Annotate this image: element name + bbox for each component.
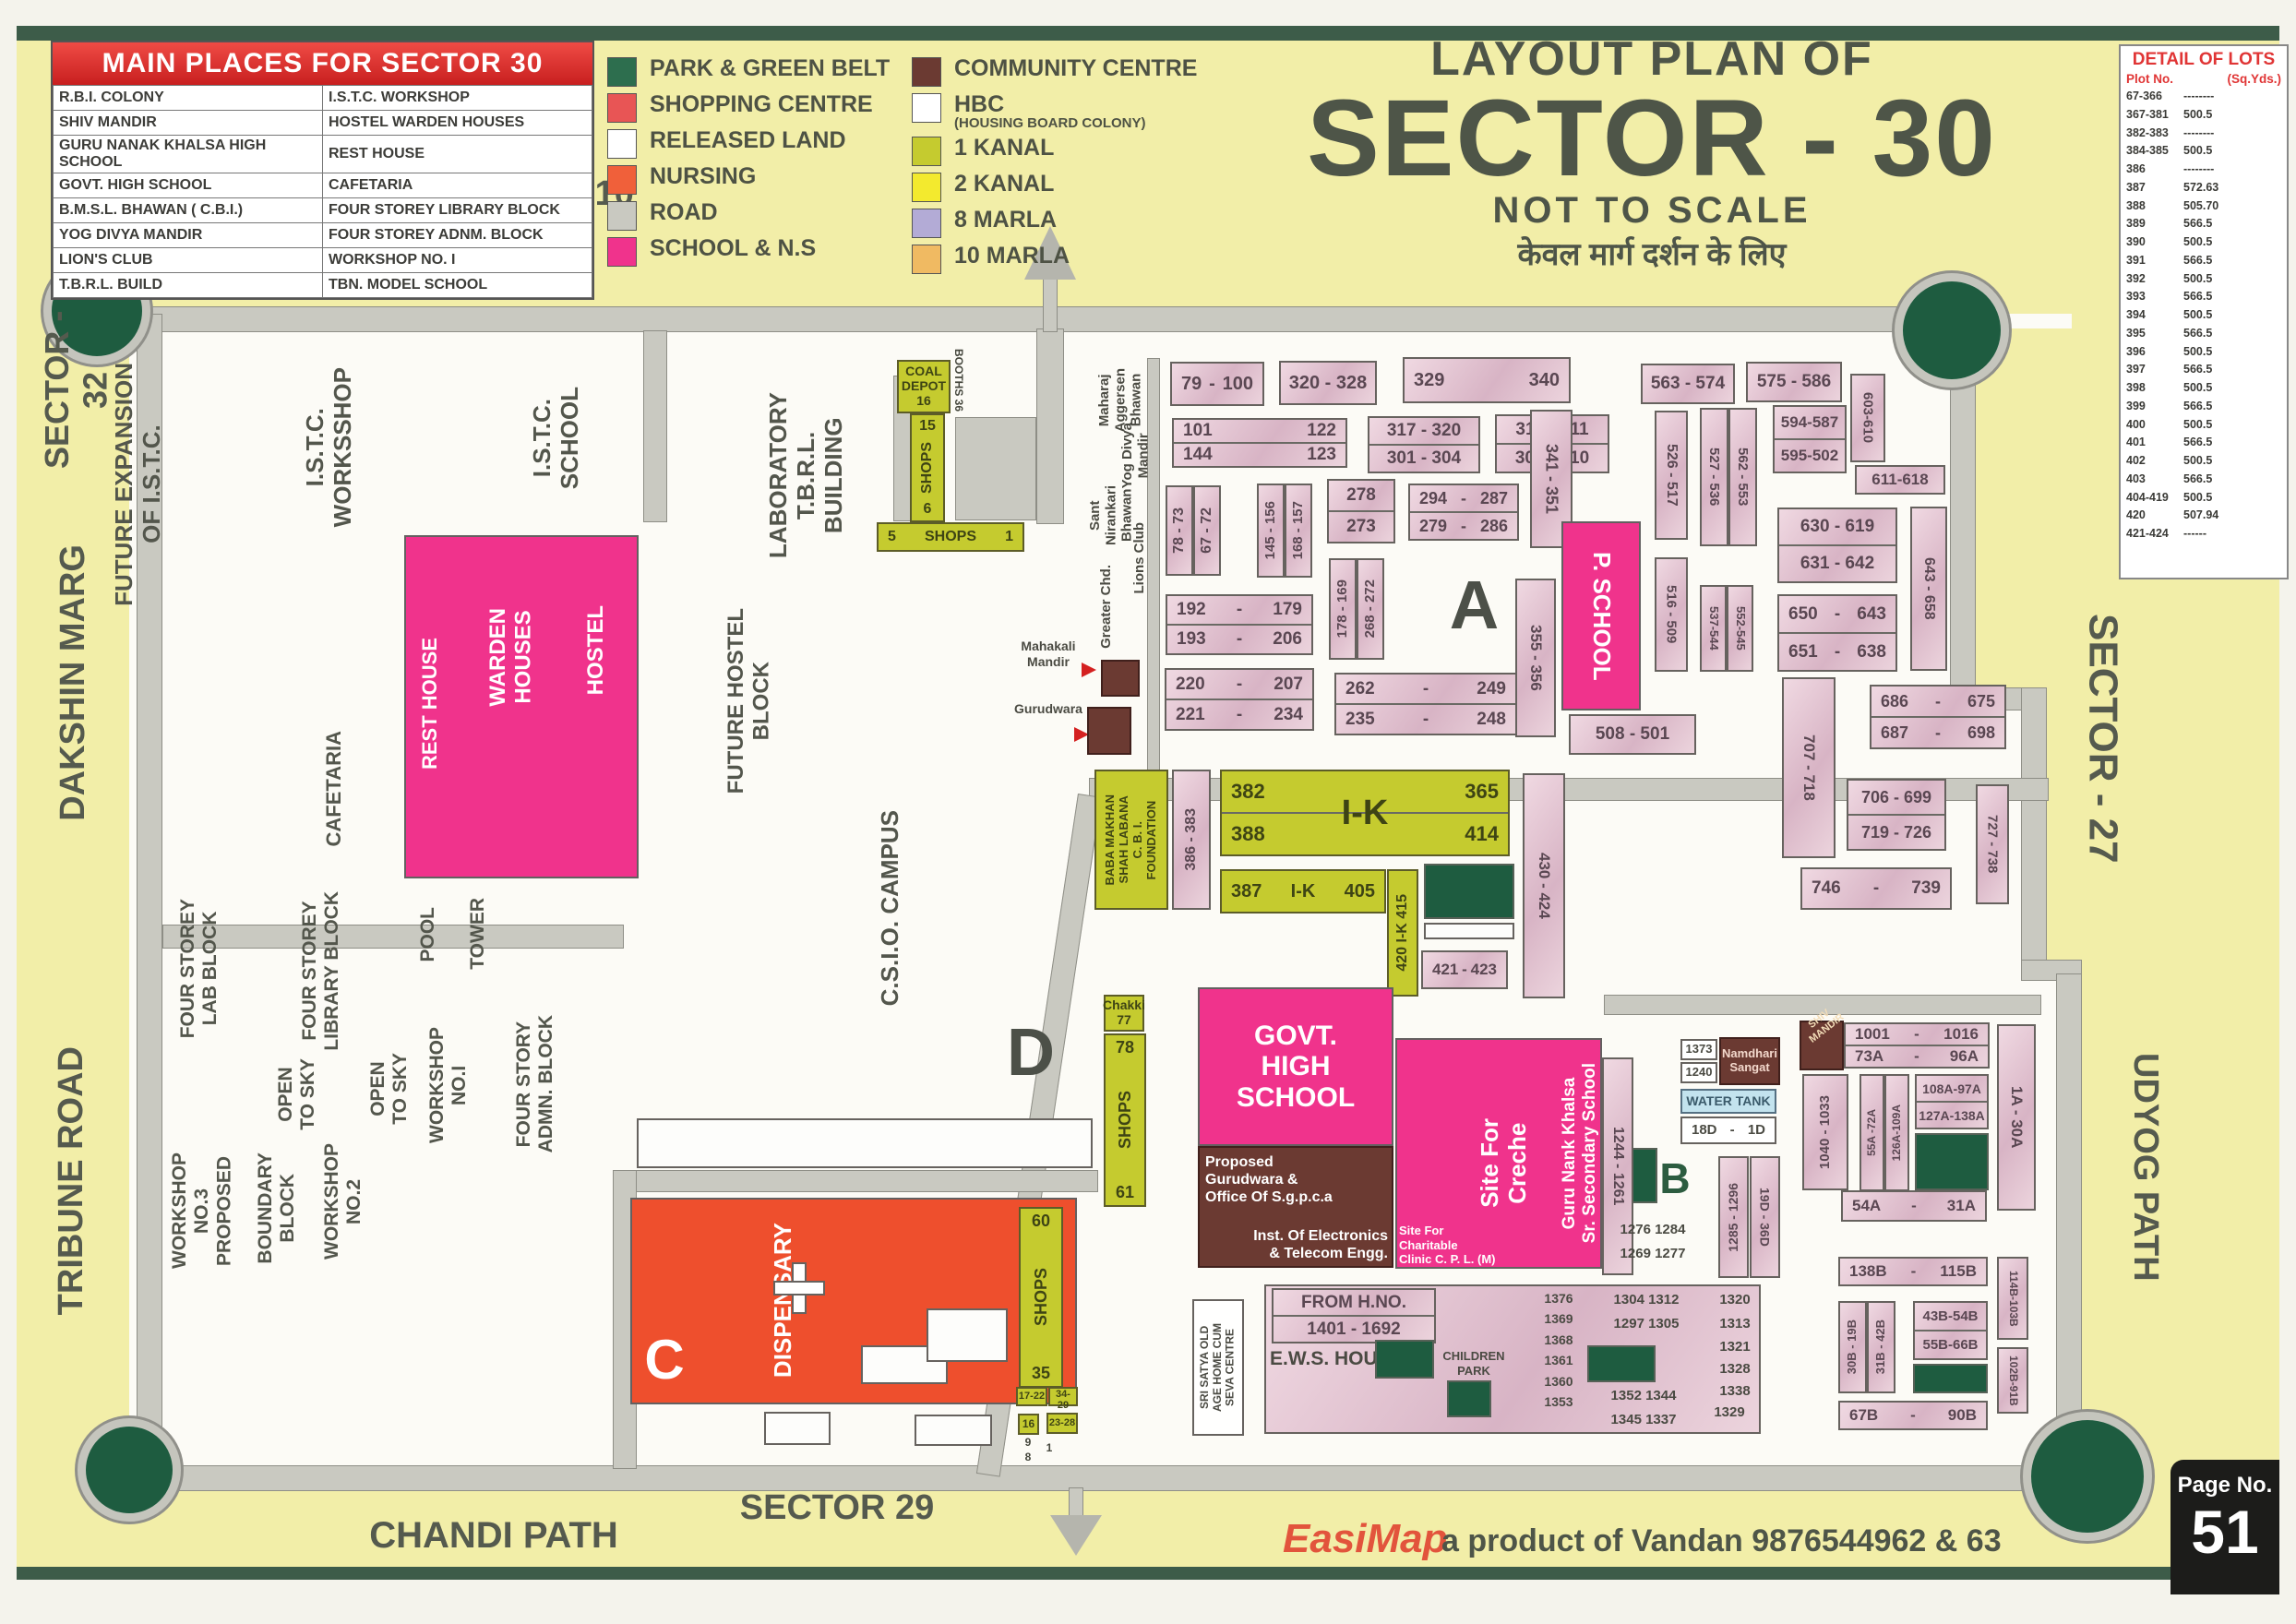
lots-row: 388505.70: [2126, 197, 2281, 216]
plot-row: 108A-97A: [1917, 1076, 1987, 1101]
plot-30b-19b: 30B - 19B: [1838, 1301, 1867, 1393]
plot-number: -: [1461, 489, 1466, 508]
plot-55a-72a-wrap: 55A -72A: [1861, 1076, 1883, 1189]
lots-row: 395566.5: [2126, 325, 2281, 343]
plot-row: WATER TANK: [1682, 1091, 1775, 1112]
plot-643-658-text: 643 - 658: [1920, 557, 1937, 620]
plot-1285-1296-text: 1285 - 1296: [1726, 1183, 1740, 1252]
main-places-row: LION'S CLUBWORKSHOP NO. I: [54, 248, 592, 273]
plot-row: 686-675: [1871, 687, 2004, 716]
lots-row: 386--------: [2126, 161, 2281, 179]
plot-number: 206: [1273, 629, 1302, 650]
plot-603-610-wrap: 603-610: [1852, 376, 1883, 460]
bottom-border-bar: [17, 1567, 2279, 1580]
shops-strip-top-part2: 6: [924, 498, 932, 520]
plot-706-719: 706 - 699719 - 726: [1847, 779, 1946, 851]
plot-268-272: 268 - 272: [1357, 558, 1384, 660]
plot-1a-30a: 1A - 30A: [1997, 1024, 2036, 1211]
plot-row: Namdhari Sangat: [1721, 1039, 1778, 1083]
label-pool-wrap: POOL: [413, 900, 443, 969]
plot-number: 115B: [1940, 1262, 1977, 1280]
plot-number: SHOPS: [925, 529, 976, 545]
main-places-row: R.B.I. COLONYI.S.T.C. WORKSHOP: [54, 86, 592, 111]
plot-168-157: 168 - 157: [1285, 484, 1312, 578]
main-places-cell: FOUR STOREY LIBRARY BLOCK: [323, 198, 592, 223]
zone-baba-makhan: BABA MAKHAN SHAH LABANA C. B. I. FOUNDAT…: [1094, 770, 1168, 910]
plot-727-738-wrap: 727 - 738: [1978, 786, 2007, 902]
label-future-hostel-wrap: FUTURE HOSTEL BLOCK: [718, 586, 781, 817]
plot-row: 575 - 586: [1748, 364, 1840, 400]
plot-number: -: [1835, 604, 1840, 625]
lots-row: 394500.5: [2126, 306, 2281, 325]
lots-sqyds: 500.5: [2183, 379, 2212, 398]
label-open-sky-2: OPEN TO SKY: [365, 1045, 413, 1132]
page-number-label: Page No.: [2170, 1473, 2279, 1499]
plot-number: 287: [1480, 489, 1508, 508]
plot-number: 651: [1788, 642, 1818, 663]
legend-swatch: [912, 57, 941, 87]
plot-number: 122: [1307, 421, 1336, 441]
legend-label: SHOPPING CENTRE: [650, 93, 873, 116]
legend-label: 10 MARLA: [954, 245, 1070, 268]
page-title: SECTOR - 30: [1292, 87, 2012, 190]
main-places-cell: R.B.I. COLONY: [54, 86, 323, 111]
lots-plot-no: 402: [2126, 452, 2183, 471]
lots-plot-no: 389: [2126, 215, 2183, 233]
legend-label: PARK & GREEN BELT: [650, 57, 890, 80]
park-mid: [1424, 864, 1514, 919]
park-children: [1447, 1380, 1491, 1417]
plot-row: 706 - 699: [1848, 781, 1944, 814]
plot-168-157-wrap: 168 - 157: [1286, 485, 1310, 576]
plot-268-272-text: 268 - 272: [1362, 579, 1378, 638]
plot-30b-19b-text: 30B - 19B: [1846, 1319, 1860, 1374]
main-places-cell: B.M.S.L. BHAWAN ( C.B.I.): [54, 198, 323, 223]
plot-650-651: 650-643651-638: [1777, 594, 1897, 672]
plot-43b-55b: 43B-54B55B-66B: [1913, 1301, 1988, 1360]
legend-item: COMMUNITY CENTRE: [912, 57, 1197, 87]
lots-plot-no: 382-383: [2126, 125, 2183, 143]
label-tribune-road-wrap: TRIBUNE ROAD: [50, 1001, 94, 1361]
label-udyog-path-text: UDYOG PATH: [2124, 1053, 2165, 1282]
plot-number: 100: [1223, 374, 1253, 394]
lots-sqyds: 566.5: [2183, 361, 2212, 379]
plot-552-545: 552-545: [1727, 585, 1753, 672]
plot-126a-109a-wrap: 126A-109A: [1886, 1076, 1907, 1189]
plot-number: 638: [1857, 642, 1886, 663]
plot-number: 220: [1176, 675, 1205, 695]
legend-item: 8 MARLA: [912, 209, 1197, 238]
label-hostel-text: HOSTEL: [583, 605, 609, 695]
arrow-down-stem: [1069, 1487, 1083, 1519]
label-mahakali-mandir: Mahakali Mandir: [1010, 639, 1087, 675]
plot-number: 101: [1183, 421, 1213, 441]
shops-strip-a-part2: 61: [1116, 1180, 1134, 1205]
label-tribune-road: TRIBUNE ROAD: [50, 1001, 94, 1361]
lots-row: 67-366--------: [2126, 88, 2281, 106]
plot-341-351-text: 341 - 351: [1542, 444, 1561, 514]
shops-label: SHOPS: [1116, 1091, 1135, 1149]
lots-sqyds: 500.5: [2183, 106, 2212, 125]
main-places-cell: FOUR STOREY ADNM. BLOCK: [323, 223, 592, 248]
main-places-cell: CAFETARIA: [323, 173, 592, 198]
plot-516-509-wrap: 516 - 509: [1656, 559, 1686, 670]
lots-plot-no: 398: [2126, 379, 2183, 398]
park-1304: [1587, 1345, 1656, 1382]
lots-sqyds: 500.5: [2183, 233, 2212, 252]
plot-102b-91b-text: 102B-91B: [2006, 1355, 2019, 1406]
plot-114b-103b: 114B-103B: [1997, 1257, 2028, 1340]
label-laboratory-tbrl-text: LABORATORY T.B.R.L. BUILDING: [765, 392, 848, 558]
lots-plot-no: 404-419: [2126, 489, 2183, 507]
plot-row: 611-618: [1857, 467, 1943, 493]
legend-label: COMMUNITY CENTRE: [954, 57, 1197, 80]
label-lions-club: Lions Club: [1130, 513, 1150, 603]
plot-number: 340: [1529, 370, 1560, 390]
road-arrow-spur: [1036, 328, 1064, 524]
label-chandi-path: CHANDI PATH: [341, 1513, 646, 1558]
legend-label: SCHOOL & N.S: [650, 237, 816, 260]
plot-row: 43B-54B: [1915, 1303, 1986, 1330]
plot-108a-127a: 108A-97A127A-138A: [1915, 1074, 1989, 1129]
label-open-sky-1: OPEN TO SKY: [273, 1050, 321, 1138]
lots-col-sqyds: (Sq.Yds.): [2227, 72, 2281, 86]
plot-126a-109a-text: 126A-109A: [1891, 1105, 1904, 1161]
plot-number: 1001: [1855, 1025, 1890, 1044]
plot-430-424: 430 - 424: [1523, 773, 1565, 998]
legend-swatch: [912, 93, 941, 123]
main-places-row: SHIV MANDIRHOSTEL WARDEN HOUSES: [54, 111, 592, 136]
legend-label: 8 MARLA: [954, 209, 1057, 232]
plot-67-72-text: 67 - 72: [1199, 507, 1215, 554]
plot-row: 23-28: [1048, 1415, 1076, 1432]
plot-19d-36d: 19D - 36D: [1750, 1156, 1780, 1278]
label-sector-29: SECTOR 29: [703, 1487, 971, 1526]
plot-number: 221: [1176, 705, 1205, 725]
plot-31b-42b: 31B - 42B: [1867, 1301, 1895, 1393]
lots-plot-no: 395: [2126, 325, 2183, 343]
detail-of-lots-title: DETAIL OF LOTS: [2126, 50, 2281, 70]
label-gnk-school: Guru Nank Khalsa Sr. Secondary School: [1560, 1041, 1600, 1266]
main-places-cell: T.B.R.L. BUILD: [54, 273, 323, 298]
label-pool: POOL: [413, 900, 443, 969]
plot-row: 144123: [1174, 442, 1345, 466]
plot-number: 294: [1419, 489, 1447, 508]
rel-strip-mid: [1424, 923, 1514, 939]
lots-plot-no: 67-366: [2126, 88, 2183, 106]
plot-1285-1296-wrap: 1285 - 1296: [1720, 1158, 1747, 1276]
plot-727-738: 727 - 738: [1976, 784, 2009, 904]
plot-row: 220-207: [1166, 670, 1312, 699]
main-places-cell: LION'S CLUB: [54, 248, 323, 273]
plot-527-536-wrap: 527 - 536: [1702, 410, 1727, 544]
zone-p-school-wrap: P. SCHOOL: [1563, 523, 1639, 709]
label-open-sky-1-wrap: OPEN TO SKY: [273, 1050, 321, 1138]
label-workshop-2-wrap: WORKSHOP NO.2: [317, 1146, 369, 1257]
plot-383-386: 386 - 383: [1172, 770, 1211, 910]
plot-383-386-text: 386 - 383: [1183, 808, 1200, 871]
label-d-block: D: [989, 1013, 1072, 1096]
plot-number: 643: [1857, 604, 1886, 625]
label-tribune-road-text: TRIBUNE ROAD: [52, 1046, 92, 1315]
lots-plot-no: 387: [2126, 179, 2183, 197]
title-hindi-subtitle: केवल मार्ग दर्शन के लिए: [1292, 232, 2012, 274]
tiny-1: 1: [1043, 1441, 1056, 1458]
label-sector-32: SECTOR - 32: [54, 291, 98, 489]
plot-79-100: 79-100: [1170, 362, 1264, 406]
box-from-hno: FROM H.NO.1401 - 1692: [1272, 1288, 1436, 1343]
plot-78-73-text: 78 - 73: [1171, 507, 1188, 554]
legend-swatch: [912, 173, 941, 202]
label-workshop-1-text: WORKSHOP NO.I: [426, 1027, 471, 1143]
label-workshop-2-text: WORKSHOP NO.2: [321, 1143, 365, 1260]
label-tower: TOWER: [463, 888, 493, 980]
plot-329-340: 329340: [1403, 357, 1571, 403]
plot-row: 320 - 328: [1281, 363, 1375, 403]
shops-strip-top: 15SHOPS6: [910, 413, 945, 522]
plot-number: -: [1462, 961, 1467, 978]
label-csio-campus-wrap: C.S.I.O. CAMPUS: [869, 795, 912, 1021]
plot-row: 79-100: [1172, 364, 1262, 404]
label-gurudwara-small: Gurudwara: [1010, 701, 1087, 722]
plot-number: 405: [1345, 881, 1375, 902]
lots-row: 401566.5: [2126, 434, 2281, 452]
plot-ik-420-415-wrap: 420 I-K 415: [1389, 871, 1417, 995]
plot-number: 79: [1181, 374, 1202, 394]
main-places-cell: SHIV MANDIR: [54, 111, 323, 136]
park-a-cluster: [1915, 1133, 1989, 1190]
plot-number: 193: [1177, 629, 1206, 650]
lots-sqyds: --------: [2183, 161, 2214, 179]
label-dakshin-marg: DAKSHIN MARG: [52, 489, 96, 877]
label-laboratory-tbrl-wrap: LABORATORY T.B.R.L. BUILDING: [759, 349, 855, 603]
main-places-row: B.M.S.L. BHAWAN ( C.B.I.)FOUR STOREY LIB…: [54, 198, 592, 223]
shops-strip-b: 60SHOPS35: [1019, 1207, 1063, 1388]
plot-707-718-wrap: 707 - 718: [1784, 679, 1834, 856]
plot-number: 18D: [1692, 1123, 1717, 1139]
lots-plot-no: 399: [2126, 398, 2183, 416]
shops-strip-top-part0: 15: [919, 415, 936, 437]
plot-101-144: 101122144123: [1172, 418, 1347, 468]
lots-row: 392500.5: [2126, 270, 2281, 289]
plot-102b-91b: 102B-91B: [1997, 1347, 2028, 1414]
lots-row: 399566.5: [2126, 398, 2281, 416]
plot-516-509-text: 516 - 509: [1663, 585, 1679, 643]
lots-row: 421-424------: [2126, 525, 2281, 543]
main-places-panel: MAIN PLACES FOR SECTOR 30 R.B.I. COLONYI…: [51, 41, 594, 300]
lots-row: 367-381500.5: [2126, 106, 2281, 125]
lots-sqyds: 566.5: [2183, 288, 2212, 306]
shops-strip-a-part0: 78: [1116, 1035, 1134, 1060]
plot-526-517-wrap: 526 - 517: [1656, 412, 1686, 538]
plot-row: 235-248: [1336, 703, 1515, 734]
plot-19d-36d-text: 19D - 36D: [1757, 1188, 1772, 1247]
main-places-cell: TBN. MODEL SCHOOL: [323, 273, 592, 298]
label-c-block: C: [637, 1327, 692, 1391]
label-boundary-block-text: BOUNDARY BLOCK: [255, 1152, 299, 1264]
tiny-8: 8: [1022, 1451, 1034, 1465]
plot-row: 18D-1D: [1682, 1118, 1775, 1142]
lots-sqyds: 500.5: [2183, 142, 2212, 161]
main-places-cell: YOG DIVYA MANDIR: [54, 223, 323, 248]
lots-sqyds: 500.5: [2183, 343, 2212, 362]
main-places-row: GOVT. HIGH SCHOOLCAFETARIA: [54, 173, 592, 198]
plot-number: -: [1209, 374, 1215, 394]
lots-row: 400500.5: [2126, 416, 2281, 435]
plot-number: -: [1914, 1025, 1919, 1044]
label-workshop-1-wrap: WORKSHOP NO.I: [423, 1032, 474, 1138]
plot-number: 31A: [1947, 1197, 1976, 1214]
legend-swatch: [607, 93, 637, 123]
lots-plot-no: 392: [2126, 270, 2183, 289]
shops-strip-a: 78SHOPS61: [1104, 1033, 1146, 1207]
label-udyog-path-wrap: UDYOG PATH: [2121, 1010, 2169, 1324]
legend-item: RELEASED LAND: [607, 129, 890, 159]
lots-sqyds: 566.5: [2183, 252, 2212, 270]
label-gnk-school-wrap: Guru Nank Khalsa Sr. Secondary School: [1560, 1041, 1600, 1266]
plot-1040-1033-text: 1040 - 1033: [1817, 1095, 1833, 1169]
label-sant-nirankari: Sant Nirankari Bhawan: [1089, 464, 1133, 567]
plot-row: 1001-1016: [1846, 1024, 1988, 1045]
label-warden-houses-text: WARDEN HOUSES: [485, 608, 536, 707]
lots-row: 396500.5: [2126, 343, 2281, 362]
legend-item: NURSING: [607, 165, 890, 195]
label-cafetaria-wrap: CAFETARIA: [316, 712, 353, 865]
layout-plan-page: SUKHNA PATHSECTOR - 10SECTOR - 32DAKSHIN…: [0, 0, 2296, 1624]
legend-column-2: COMMUNITY CENTREHBC(HOUSING BOARD COLONY…: [912, 57, 1197, 281]
shops-label: SHOPS: [919, 442, 936, 494]
legend-item: ROAD: [607, 201, 890, 231]
plot-row: Chakki 77: [1106, 997, 1142, 1030]
shops-strip-b-part0: 60: [1032, 1209, 1050, 1234]
plot-537-544-text: 537-544: [1706, 606, 1720, 651]
dispensary-bldg-2: [927, 1308, 1008, 1362]
plot-114b-103b-text: 114B-103B: [2006, 1271, 2019, 1327]
plot-number: 387: [1231, 881, 1262, 902]
plot-102b-91b-wrap: 102B-91B: [1999, 1349, 2027, 1412]
chip-23-28: 23-28: [1046, 1413, 1078, 1434]
legend-item: 1 KANAL: [912, 137, 1197, 166]
zone-p-school: P. SCHOOL: [1561, 521, 1641, 710]
lots-sqyds: 500.5: [2183, 270, 2212, 289]
label-greater-chd-text: Greater Chd.: [1098, 565, 1114, 649]
plot-number: -: [1237, 675, 1242, 695]
bldg-below-1: [764, 1412, 831, 1445]
label-admn-block-text: FOUR STORY ADMN. BLOCK: [513, 1015, 557, 1152]
plot-630-631: 630 - 619631 - 642: [1777, 507, 1897, 583]
plot-383-386-wrap: 386 - 383: [1174, 771, 1209, 908]
label-charitable-clinic: Site For Charitable Clinic C. P. L. (M): [1399, 1224, 1501, 1268]
lots-plot-no: 396: [2126, 343, 2183, 362]
col-1376: 1376 1369 1368 1361 1360 1353: [1537, 1288, 1580, 1415]
plot-number: 414: [1465, 822, 1499, 846]
label-proposed-gurudwara: Proposed Gurudwara & Office Of S.g.p.c.a: [1205, 1153, 1353, 1218]
lots-plot-no: 397: [2126, 361, 2183, 379]
plot-row: 279-286: [1410, 511, 1517, 539]
main-places-row: GURU NANAK KHALSA HIGH SCHOOLREST HOUSE: [54, 136, 592, 173]
plot-number: -: [1873, 878, 1879, 898]
lots-plot-no: 393: [2126, 288, 2183, 306]
lots-plot-no: 386: [2126, 161, 2183, 179]
plot-145-156-wrap: 145 - 156: [1259, 485, 1283, 576]
plot-562-553-text: 562 - 553: [1735, 448, 1751, 506]
chip-18d-1d: 18D-1D: [1680, 1116, 1776, 1144]
main-places-cell: GURU NANAK KHALSA HIGH SCHOOL: [54, 136, 323, 173]
label-library-block: FOUR STOREY LIBRARY BLOCK: [293, 881, 349, 1061]
plot-row: 5SHOPS1: [879, 524, 1022, 550]
plot-78-73-wrap: 78 - 73: [1167, 487, 1191, 574]
label-boundary-block-wrap: BOUNDARY BLOCK: [251, 1146, 303, 1271]
plot-number: -: [1835, 642, 1840, 663]
plot-1a-30a-text: 1A - 30A: [2007, 1086, 2026, 1148]
lots-plot-no: 391: [2126, 252, 2183, 270]
plot-row: 16: [1020, 1415, 1037, 1433]
detail-of-lots-panel: DETAIL OF LOTS Plot No. (Sq.Yds.) 67-366…: [2119, 44, 2289, 579]
label-open-sky-2-text: OPEN TO SKY: [367, 1053, 412, 1125]
plot-row: 67B-90B: [1840, 1403, 1986, 1428]
plot-row: 650-643: [1779, 596, 1895, 632]
plot-number: 423: [1471, 961, 1497, 978]
plot-355-356: 355 - 356: [1515, 579, 1556, 737]
plot-643-658: 643 - 658: [1910, 507, 1947, 671]
plot-row: 687-698: [1871, 716, 2004, 747]
plot-row: 73A-96A: [1846, 1045, 1988, 1067]
plot-number: 234: [1274, 705, 1303, 725]
row-1304: 1304 1312 1297 1305: [1589, 1288, 1704, 1336]
lots-sqyds: 500.5: [2183, 452, 2212, 471]
legend-column-1: PARK & GREEN BELTSHOPPING CENTRERELEASED…: [607, 57, 890, 273]
plot-row: 1401 - 1692: [1274, 1315, 1434, 1342]
plot-number: 388: [1231, 822, 1265, 846]
legend-item: 10 MARLA: [912, 245, 1197, 274]
label-warden-houses: WARDEN HOUSES: [482, 565, 541, 749]
plot-row: 651-638: [1779, 632, 1895, 670]
label-gnk-school-text: Guru Nank Khalsa Sr. Secondary School: [1560, 1063, 1600, 1243]
col-1321: 1321 1328 1338: [1711, 1336, 1759, 1406]
lots-plot-no: 394: [2126, 306, 2183, 325]
zone-baba-makhan-wrap: BABA MAKHAN SHAH LABANA C. B. I. FOUNDAT…: [1096, 771, 1166, 908]
plot-number: 67B: [1849, 1406, 1878, 1424]
chip-1373: 1373: [1680, 1039, 1717, 1060]
plot-number: 686: [1881, 692, 1908, 711]
main-places-table: R.B.I. COLONYI.S.T.C. WORKSHOPSHIV MANDI…: [53, 85, 592, 298]
main-places-cell: GOVT. HIGH SCHOOL: [54, 173, 323, 198]
label-pool-text: POOL: [417, 907, 439, 962]
plot-126a-109a: 126A-109A: [1884, 1074, 1909, 1191]
plot-number: 1D: [1748, 1123, 1765, 1139]
park-b-cluster: [1913, 1364, 1988, 1393]
plot-1040-1033: 1040 - 1033: [1802, 1074, 1848, 1190]
plot-row: 17-22: [1018, 1389, 1046, 1404]
label-sant-nirankari-wrap: Sant Nirankari Bhawan: [1089, 464, 1133, 567]
lots-row: 403566.5: [2126, 471, 2281, 489]
plot-row: 387I-K405: [1222, 871, 1384, 912]
legend-item: HBC(HOUSING BOARD COLONY): [912, 93, 1197, 130]
shops-strip-a-part1: SHOPS: [1116, 1060, 1135, 1180]
label-cafetaria: CAFETARIA: [316, 712, 353, 865]
plot-516-509: 516 - 509: [1655, 557, 1688, 672]
label-rest-house-wrap: REST HOUSE: [412, 604, 448, 803]
label-booths-36: BOOTHS 36: [949, 343, 967, 417]
plot-178-169-wrap: 178 - 169: [1331, 560, 1355, 658]
plot-168-157-text: 168 - 157: [1290, 501, 1306, 559]
lots-sqyds: 566.5: [2183, 434, 2212, 452]
label-greater-chd-wrap: Greater Chd.: [1096, 561, 1117, 651]
label-sant-nirankari-text: Sant Nirankari Bhawan: [1087, 485, 1135, 545]
label-library-block-text: FOUR STOREY LIBRARY BLOCK: [299, 891, 343, 1051]
plot-145-156: 145 - 156: [1257, 484, 1285, 578]
lots-row: 404-419500.5: [2126, 489, 2281, 507]
